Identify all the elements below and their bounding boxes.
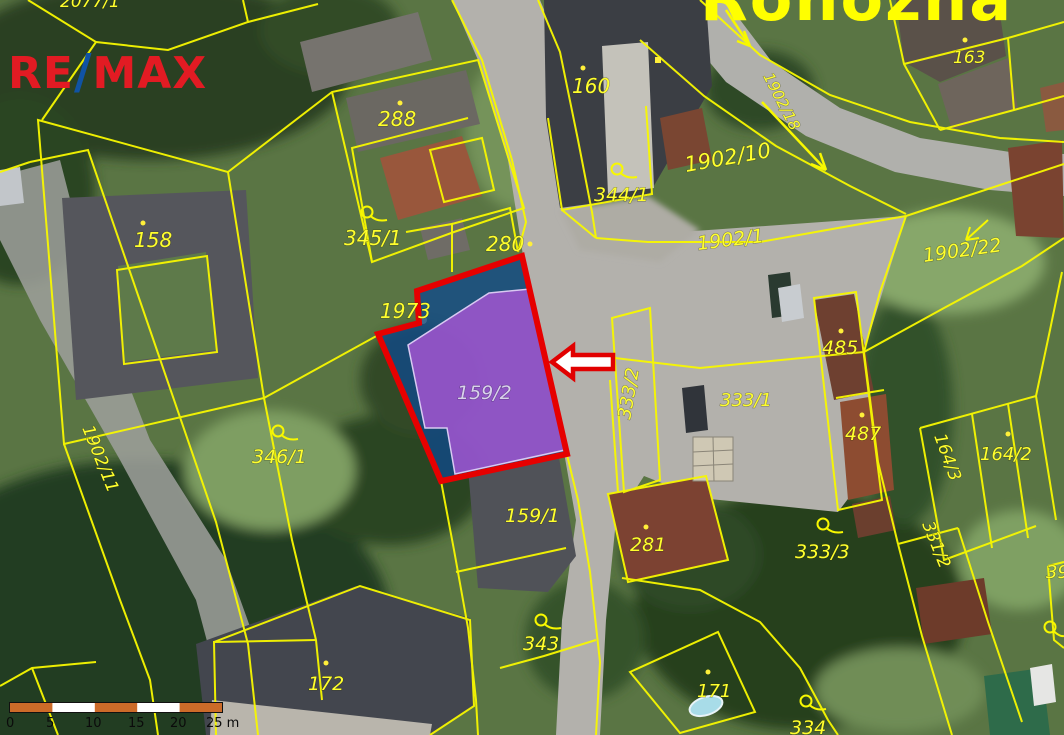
- remax-logo-max: MAX: [92, 48, 207, 99]
- car: [682, 385, 708, 433]
- scale-tick: 0: [6, 716, 14, 731]
- parcel-label: 346/1: [252, 446, 307, 468]
- parcel-label: 333/1: [720, 390, 772, 411]
- parcel-label: 159/1: [505, 505, 560, 527]
- parcel-label: 39: [1046, 562, 1064, 583]
- parcel-label: 487: [845, 423, 881, 445]
- cadastral-map: Rohozná 2077/1 158 288 345/1 280 1973 16…: [0, 0, 1064, 735]
- parcel-label: 2077/1: [60, 0, 120, 12]
- parcel-label: 343: [523, 633, 559, 655]
- scale-tick: 5: [46, 716, 54, 731]
- parcel-label: 280: [486, 232, 524, 256]
- parcel-label: 1973: [380, 299, 431, 323]
- car: [778, 284, 804, 322]
- parcel-label: 158: [134, 228, 172, 252]
- map-canvas: Rohozná 2077/1 158 288 345/1 280 1973 16…: [0, 0, 1064, 735]
- car: [0, 167, 24, 206]
- remax-logo-slash: /: [74, 44, 93, 100]
- scale-tick: 10: [85, 716, 102, 731]
- parcel-label: 485: [822, 337, 858, 359]
- remax-logo: RE/MAX: [8, 44, 207, 100]
- parcel-label: 171: [697, 681, 731, 702]
- highlighted-parcel-label: 159/2: [457, 382, 512, 404]
- scale-tick: 25 m: [206, 716, 239, 731]
- parcel-label: 164/2: [980, 444, 1032, 465]
- parcel-label: 334: [790, 717, 826, 735]
- car: [1030, 664, 1056, 706]
- place-name: Rohozná: [700, 0, 1013, 35]
- parcel-label: 288: [378, 107, 416, 131]
- parcel-label: 333/3: [795, 541, 850, 563]
- pallet-stack: [693, 437, 733, 481]
- building: [1008, 140, 1064, 238]
- parcel-label: 172: [308, 673, 344, 695]
- building: [840, 394, 894, 500]
- parcel-label: 345/1: [344, 226, 402, 250]
- parcel-label: 344/1: [594, 184, 649, 206]
- building: [916, 578, 992, 644]
- parcel-label: 281: [630, 534, 666, 556]
- scale-tick: 20: [170, 716, 187, 731]
- parcel-label: 163: [953, 48, 985, 68]
- remax-logo-re: RE: [8, 48, 74, 99]
- scale-tick: 15: [128, 716, 145, 731]
- parcel-label: 160: [572, 74, 610, 98]
